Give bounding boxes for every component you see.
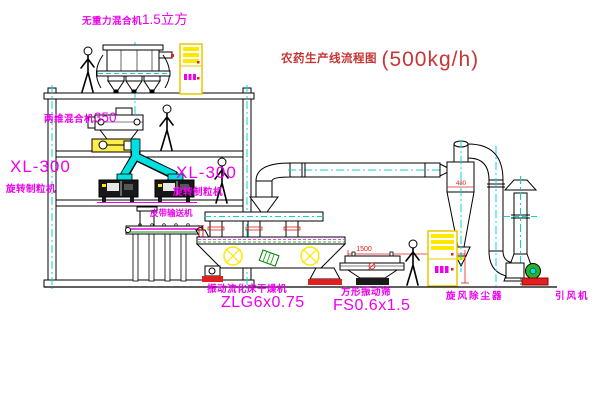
- fan-label: 引风机: [555, 292, 590, 302]
- person-second-floor: [160, 105, 173, 150]
- control-cabinet-lower: [428, 231, 457, 286]
- gravity-mixer-label: 无重力混合机1.5立方: [82, 12, 188, 28]
- belt-conveyor: [126, 224, 203, 281]
- drawing-title-capacity: (500kg/h): [381, 48, 479, 71]
- granulator-left: [99, 180, 138, 202]
- gravity-free-mixer: [96, 45, 174, 93]
- person-ground-level: [406, 240, 419, 285]
- drawing-title: 农药生产线流程图 (500kg/h): [281, 48, 479, 72]
- control-cabinet-upper: [180, 44, 202, 94]
- granulator-left-name-label: 旋转制粒机: [6, 185, 56, 195]
- mixer-350-label: 两维混合机350: [44, 110, 117, 126]
- cyclone-label: 旋风除尘器: [446, 292, 504, 302]
- dryer-model-label: ZLG6x0.75: [221, 295, 305, 311]
- belt-conveyor-label: 皮带输送机: [150, 209, 193, 218]
- granulator-right-name-label: 旋转制粒机: [173, 188, 223, 198]
- exhaust-duct: [288, 163, 452, 177]
- granulator-left-model-label: XL-300: [10, 158, 71, 175]
- process-flow-screenshot: 480 1500 941: [0, 0, 600, 403]
- person-on-roof: [81, 47, 94, 92]
- induced-draft-fan: [506, 263, 548, 285]
- screen-length-dimension: 1500: [356, 246, 372, 253]
- granulator-right-model-label: XL-300: [176, 164, 237, 181]
- screen-model-label: FS0.6x1.5: [333, 298, 410, 314]
- drawing-title-text: 农药生产线流程图: [281, 53, 377, 65]
